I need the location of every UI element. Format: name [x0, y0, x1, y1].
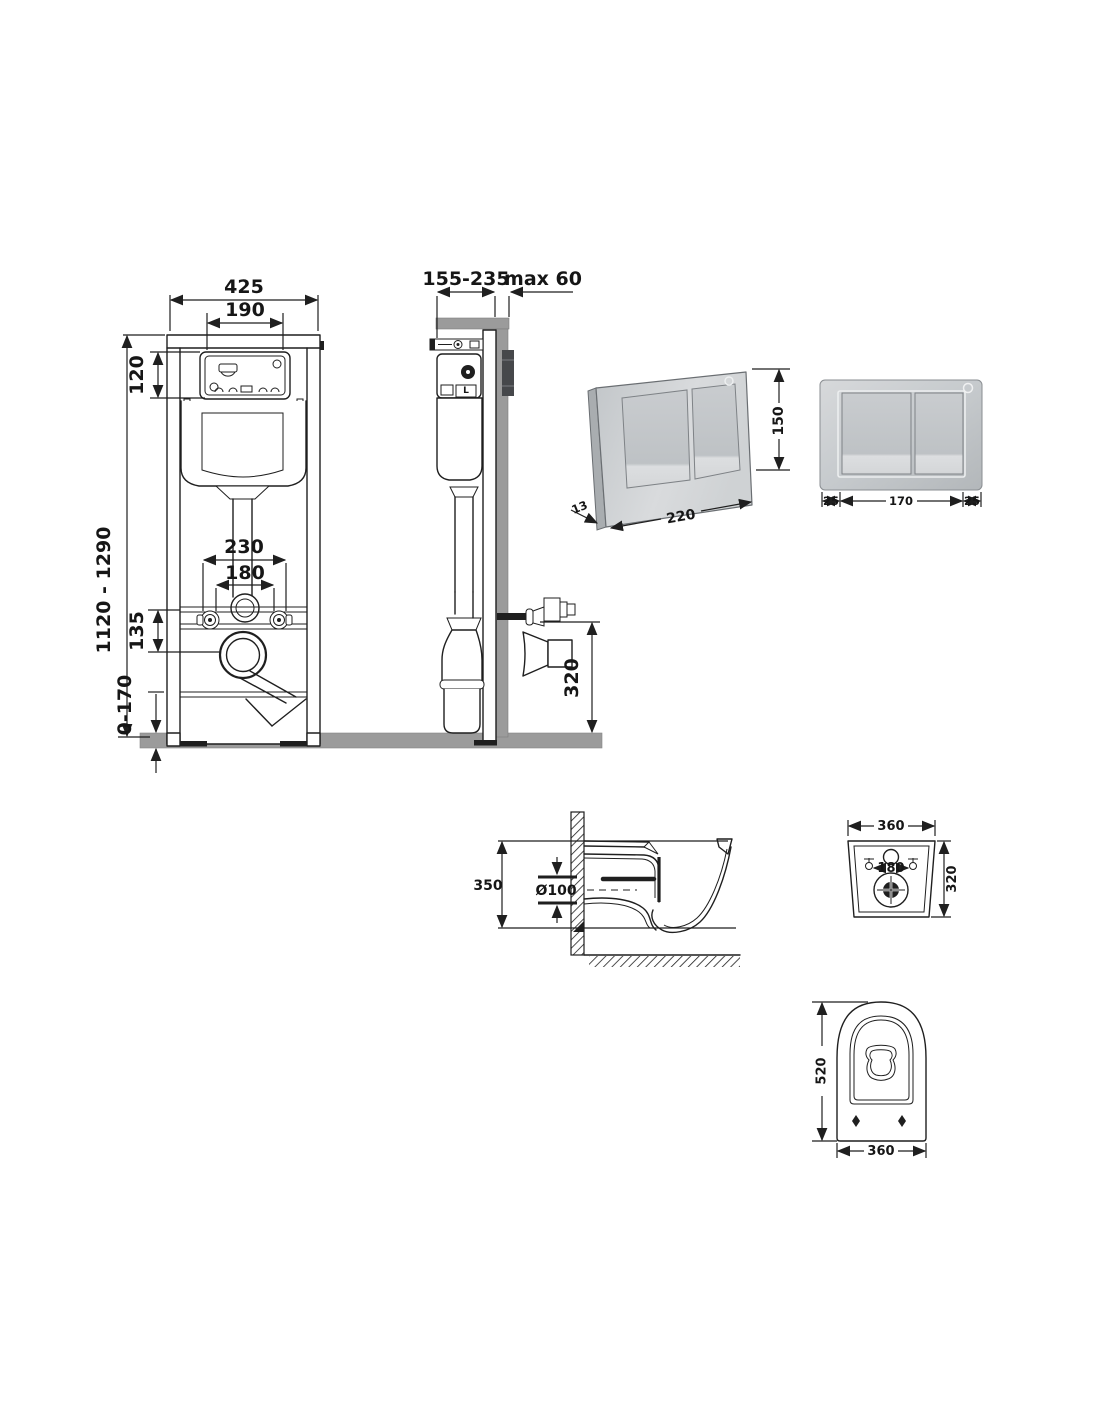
dim-outlet-drop: 135: [126, 611, 148, 651]
outlet-target-mark: [874, 873, 908, 907]
flush-button-large: [842, 393, 911, 474]
dim-outlet-span: 180: [225, 562, 265, 584]
installation-diagram: 425 190 120 1120 - 1290 230 180 135: [0, 0, 1100, 1422]
bowl-rear-view: 180 360 320: [848, 819, 960, 917]
cistern-head-side: L: [437, 354, 481, 398]
water-spot: [866, 1045, 896, 1080]
flush-button-small: [915, 393, 963, 474]
dim-outlet-height: 320: [561, 658, 583, 698]
dim-foot-adjust: 0-170: [114, 675, 136, 736]
frame-rail-side: [483, 330, 496, 744]
dim-plate-buttons-width: 170: [889, 494, 913, 508]
bowl-side-view: 350 Ø100: [473, 812, 740, 967]
dim-frame-total-width: 425: [224, 276, 264, 298]
dim-outlet-diameter: Ø100: [535, 883, 576, 899]
floor-section: [584, 955, 740, 967]
bowl-bottom-view: 520 360: [812, 1002, 926, 1159]
dim-rear-width: 360: [877, 819, 904, 834]
hanger-tab: [320, 341, 324, 350]
dim-wall-max: max 60: [504, 268, 582, 290]
wall-bracket-arm: [430, 339, 483, 350]
dim-bowl-width: 360: [867, 1144, 894, 1159]
dim-plate-height: 150: [771, 406, 787, 435]
cistern-front: [181, 401, 306, 499]
dim-plate-thickness: 13: [569, 498, 589, 517]
cistern-body-side: [437, 398, 484, 733]
dim-plate-margin-left: 25: [823, 494, 839, 508]
flush-plate-perspective: 150 220 13: [569, 369, 790, 530]
frame-front-view: 425 190 120 1120 - 1290 230 180 135: [93, 276, 324, 773]
dim-depth-range: 155-235: [422, 268, 509, 290]
flush-button-large-3d: [622, 390, 690, 488]
valve-label: L: [463, 386, 469, 396]
diagram-canvas: 425 190 120 1120 - 1290 230 180 135: [0, 0, 1100, 1422]
flush-plate-front: 25 170 25: [820, 380, 982, 508]
dim-bowl-height: 350: [473, 878, 502, 894]
service-window: [200, 352, 290, 399]
dim-bowl-length: 520: [815, 1057, 830, 1084]
dim-rear-height: 320: [945, 865, 960, 892]
dim-plate-margin-right: 25: [964, 494, 980, 508]
dim-service-window-width: 190: [225, 299, 265, 321]
bowl-profile: [573, 839, 732, 932]
flush-plate-recess: [502, 350, 514, 396]
flush-button-small-3d: [692, 384, 740, 479]
dim-fixing-span: 230: [224, 536, 264, 558]
dim-service-window-height: 120: [126, 355, 148, 395]
top-wall-bracket-bar: [436, 318, 509, 329]
dim-frame-height-range: 1120 - 1290: [93, 527, 115, 654]
